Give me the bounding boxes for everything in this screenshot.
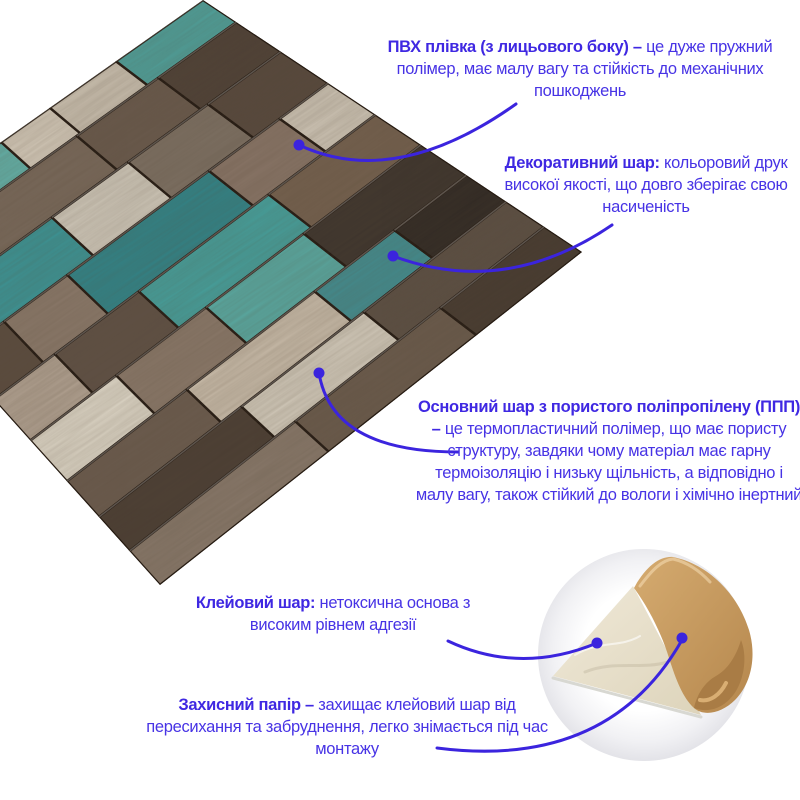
callout-dot-5 <box>677 633 688 644</box>
callout-dot-1 <box>294 140 305 151</box>
callout-dot-2 <box>388 251 399 262</box>
annotation-base-layer: Основний шар з пористого поліпропілену (… <box>415 396 800 506</box>
annotation-decorative-layer-title: Декоративний шар: <box>505 154 664 172</box>
annotation-adhesive-layer: Клейовий шар: нетоксична основа з високи… <box>168 592 498 636</box>
annotation-protective-paper-title: Захисний папір – <box>178 696 318 714</box>
adhesive-backing-illustration <box>538 549 753 761</box>
annotation-base-layer-text: це термопластичний полімер, що має порис… <box>416 420 800 504</box>
annotation-pvc-film-title: ПВХ плівка (з лицьового боку) – <box>388 38 646 56</box>
infographic-canvas: ПВХ плівка (з лицьового боку) – це дуже … <box>0 0 800 800</box>
annotation-pvc-film: ПВХ плівка (з лицьового боку) – це дуже … <box>368 36 792 102</box>
annotation-decorative-layer: Декоративний шар: кольоровий друк високо… <box>498 152 794 218</box>
annotation-protective-paper: Захисний папір – захищає клейовий шар ві… <box>142 694 552 760</box>
callout-dot-3 <box>314 368 325 379</box>
callout-dot-4 <box>592 638 603 649</box>
annotation-adhesive-layer-title: Клейовий шар: <box>196 594 320 612</box>
